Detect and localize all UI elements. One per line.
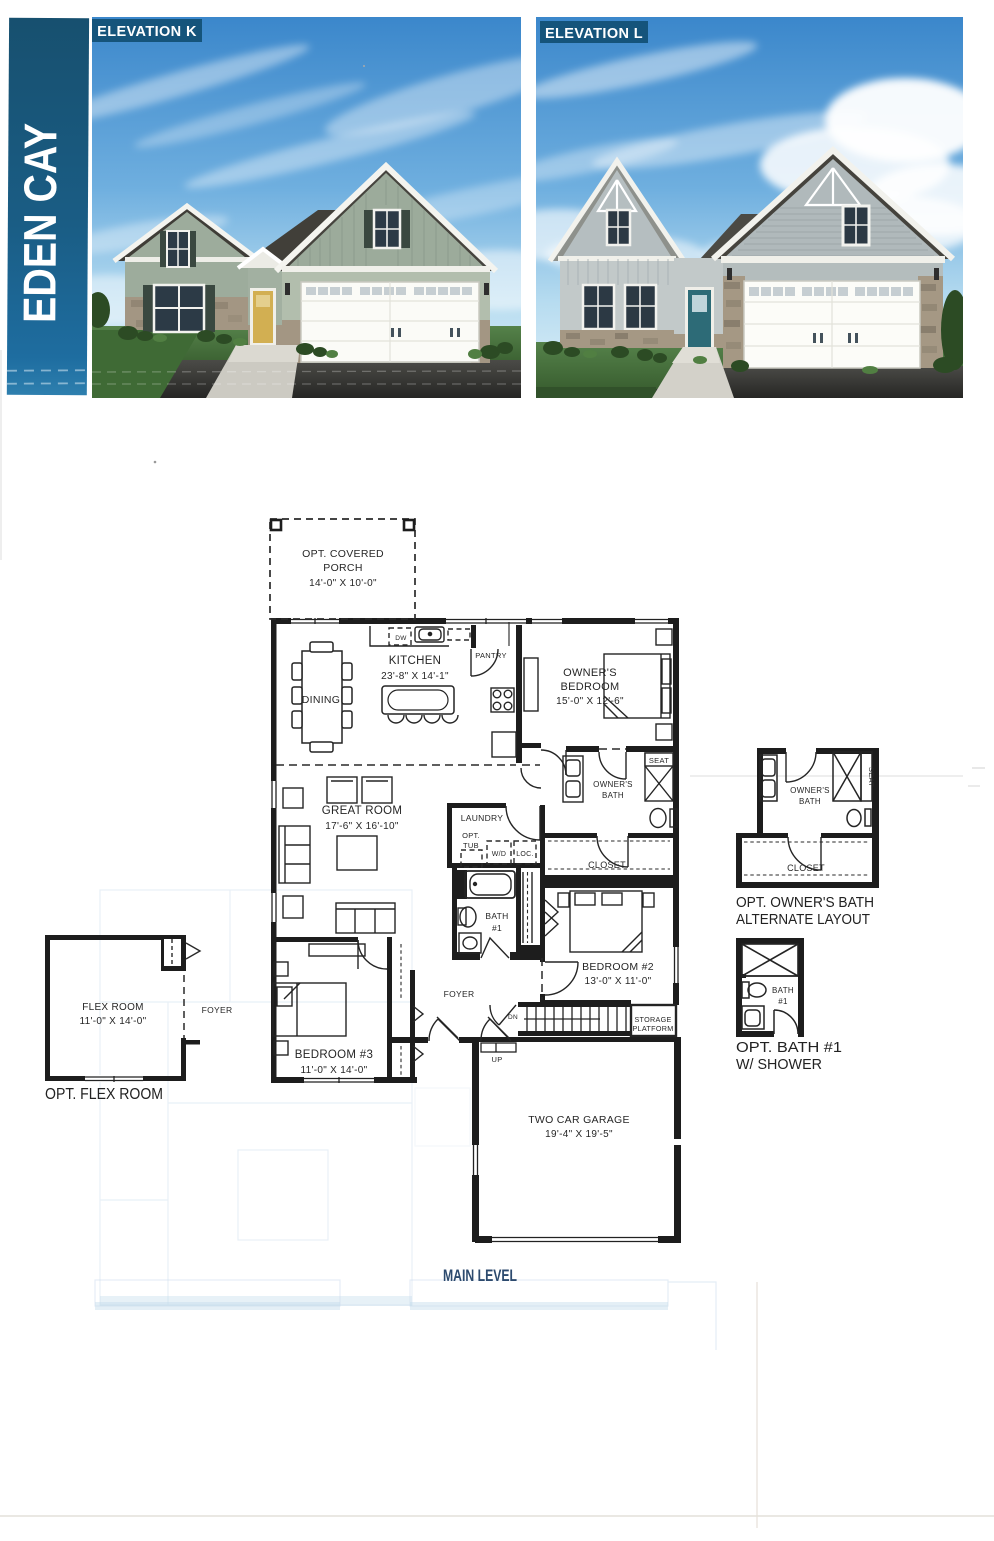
svg-text:TUB: TUB [463,841,479,850]
svg-text:13'-0" X 11'-0": 13'-0" X 11'-0" [585,976,652,987]
svg-text:BEDROOM: BEDROOM [561,681,620,693]
svg-text:BATH: BATH [602,791,624,800]
svg-text:15'-0" X 12'-6": 15'-0" X 12'-6" [556,696,624,707]
svg-text:PLATFORM: PLATFORM [632,1024,673,1033]
svg-text:OPT.: OPT. [462,831,480,840]
svg-text:DINING: DINING [302,694,341,706]
svg-text:#1: #1 [492,923,502,933]
svg-text:W/D: W/D [492,851,507,858]
svg-text:BATH: BATH [799,797,821,806]
svg-text:STORAGE: STORAGE [634,1015,671,1024]
svg-text:PORCH: PORCH [323,562,362,574]
svg-text:MAIN LEVEL: MAIN LEVEL [443,1267,517,1285]
svg-text:BATH: BATH [772,986,794,995]
svg-text:11'-0" X 14'-0": 11'-0" X 14'-0" [301,1065,368,1076]
svg-text:CLOSET: CLOSET [787,863,825,873]
svg-text:TWO CAR GARAGE: TWO CAR GARAGE [528,1114,630,1126]
svg-text:BEDROOM #2: BEDROOM #2 [582,961,654,973]
svg-text:BATH: BATH [485,911,508,921]
svg-text:W/ SHOWER: W/ SHOWER [736,1057,822,1073]
svg-text:OPT. FLEX ROOM: OPT. FLEX ROOM [45,1086,163,1103]
svg-text:UP: UP [491,1055,502,1064]
svg-text:DW: DW [395,635,407,642]
svg-text:SEAT: SEAT [867,767,876,787]
svg-text:FOYER: FOYER [444,989,475,999]
svg-text:23'-8" X 14'-1": 23'-8" X 14'-1" [381,671,449,682]
svg-text:BEDROOM #3: BEDROOM #3 [295,1049,373,1061]
svg-text:DN: DN [508,1014,518,1021]
svg-text:SEAT: SEAT [649,756,669,765]
svg-text:PANTRY: PANTRY [475,651,507,660]
svg-text:OPT. BATH #1: OPT. BATH #1 [736,1040,842,1056]
svg-text:ALTERNATE LAYOUT: ALTERNATE LAYOUT [736,912,870,928]
svg-text:OPT. COVERED: OPT. COVERED [302,548,384,560]
svg-text:CLOSET: CLOSET [588,860,626,870]
svg-text:FOYER: FOYER [202,1005,233,1015]
svg-text:KITCHEN: KITCHEN [389,655,442,667]
svg-text:LAUNDRY: LAUNDRY [461,813,504,823]
svg-text:#1: #1 [778,997,788,1006]
svg-text:17'-6" X 16'-10": 17'-6" X 16'-10" [325,821,399,832]
svg-text:11'-0" X 14'-0": 11'-0" X 14'-0" [80,1016,147,1027]
svg-text:OWNER'S: OWNER'S [593,780,633,789]
svg-text:EDEN CAY: EDEN CAY [13,123,66,323]
svg-text:GREAT ROOM: GREAT ROOM [322,805,403,817]
svg-text:FLEX ROOM: FLEX ROOM [82,1002,144,1013]
svg-text:14'-0" X 10'-0": 14'-0" X 10'-0" [309,578,377,589]
svg-text:OWNER'S: OWNER'S [790,786,830,795]
svg-text:ELEVATION L: ELEVATION L [545,26,643,42]
svg-text:ELEVATION K: ELEVATION K [97,24,197,40]
svg-text:OWNER'S: OWNER'S [563,667,617,679]
svg-text:OPT. OWNER'S BATH: OPT. OWNER'S BATH [736,895,874,911]
svg-text:LOC.: LOC. [516,851,534,858]
svg-text:19'-4" X 19'-5": 19'-4" X 19'-5" [545,1129,613,1140]
